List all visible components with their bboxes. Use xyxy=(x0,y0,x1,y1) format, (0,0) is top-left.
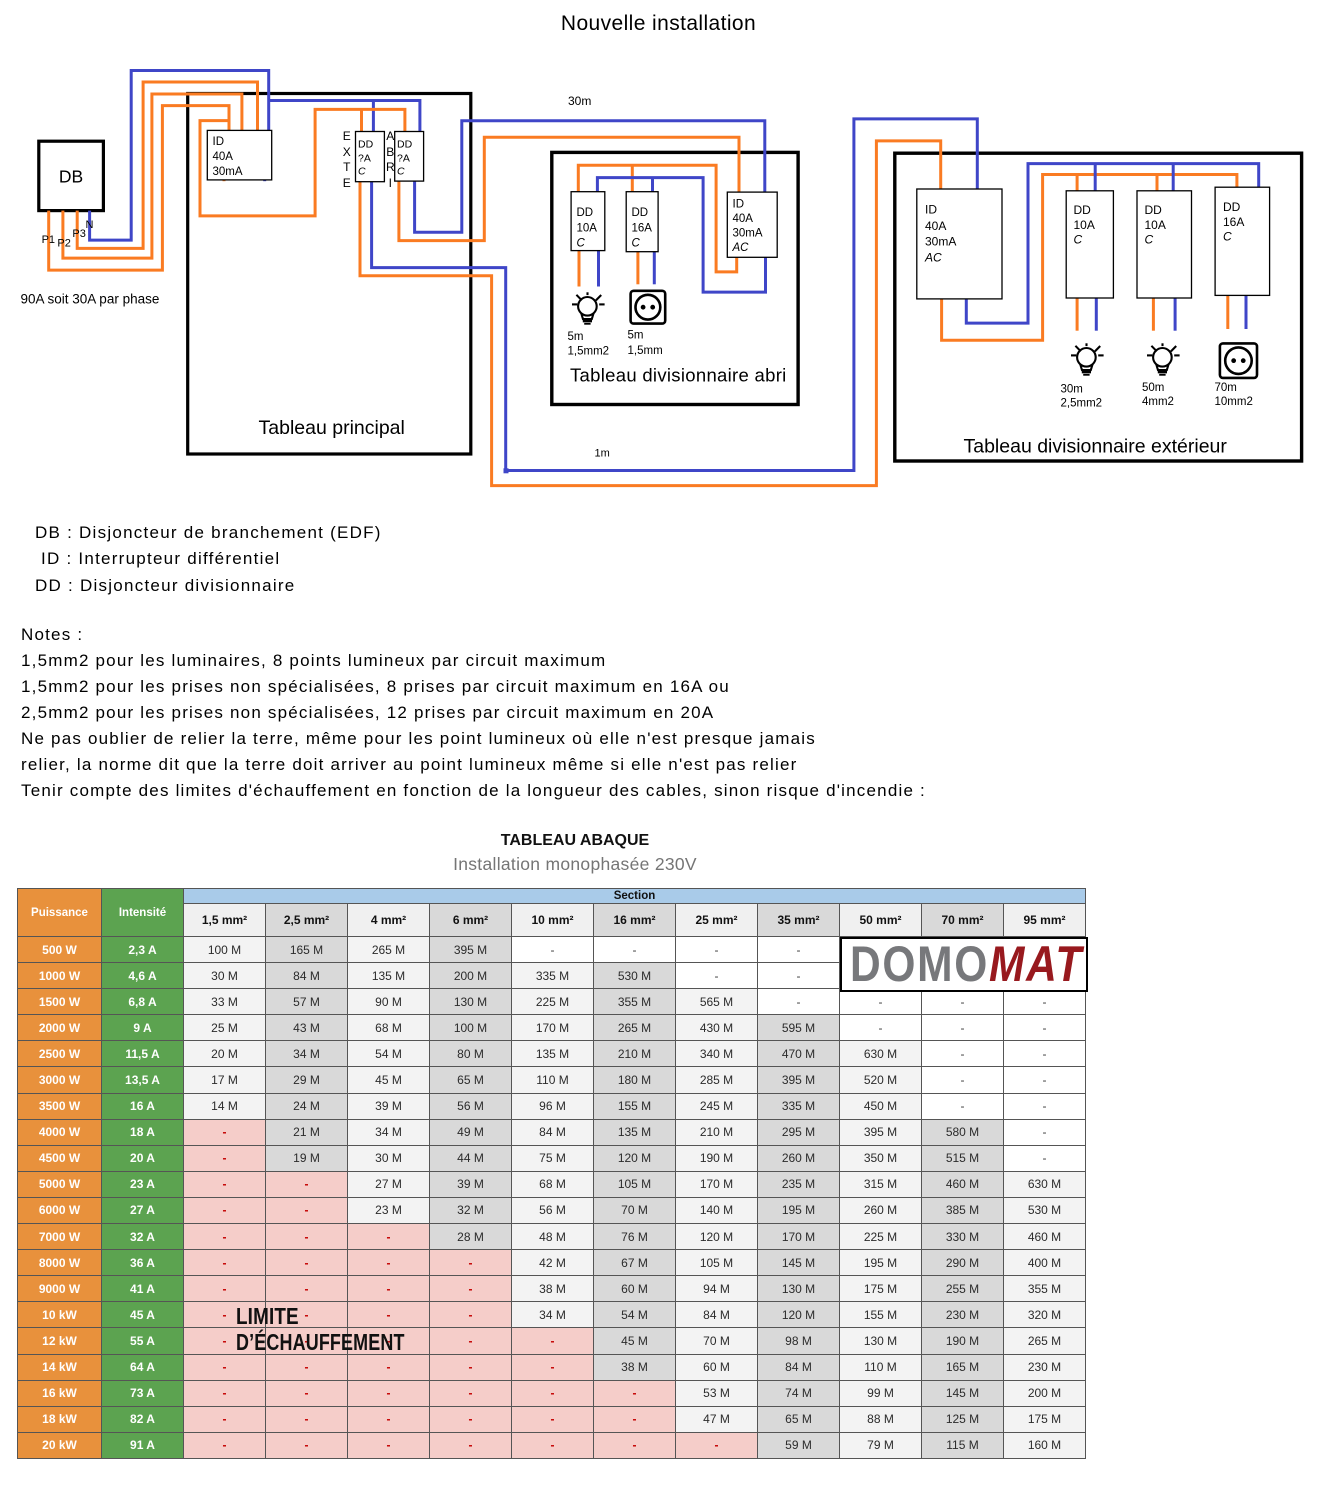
svg-text:N: N xyxy=(86,219,94,231)
svg-text:2,5mm2: 2,5mm2 xyxy=(1061,398,1103,410)
svg-text:1m: 1m xyxy=(595,448,610,460)
svg-text:5m: 5m xyxy=(628,330,644,342)
svg-text:DB: DB xyxy=(59,167,83,187)
svg-text:1,5mm2: 1,5mm2 xyxy=(568,346,610,358)
svg-text:ABRI: ABRI xyxy=(386,129,395,190)
svg-text:70m: 70m xyxy=(1215,382,1237,394)
svg-text:P2: P2 xyxy=(57,238,70,250)
svg-text:P1: P1 xyxy=(42,234,55,246)
svg-text:50m: 50m xyxy=(1142,382,1164,394)
svg-text:Tableau divisionnaire extérieu: Tableau divisionnaire extérieur xyxy=(963,436,1227,458)
svg-text:10mm2: 10mm2 xyxy=(1215,396,1253,408)
svg-text:EXTE: EXTE xyxy=(343,129,351,190)
svg-text:Tableau divisionnaire abri: Tableau divisionnaire abri xyxy=(570,365,787,386)
svg-text:5m: 5m xyxy=(568,331,584,343)
svg-text:P3: P3 xyxy=(72,228,85,240)
svg-text:Nouvelle installation: Nouvelle installation xyxy=(561,12,756,35)
svg-text:1,5mm: 1,5mm xyxy=(628,345,663,357)
svg-text:30m: 30m xyxy=(1061,384,1083,396)
svg-text:4mm2: 4mm2 xyxy=(1142,396,1174,408)
svg-text:Tableau principal: Tableau principal xyxy=(259,417,405,439)
svg-text:90A soit 30A par phase: 90A soit 30A par phase xyxy=(21,292,160,307)
svg-text:30m: 30m xyxy=(568,94,591,108)
